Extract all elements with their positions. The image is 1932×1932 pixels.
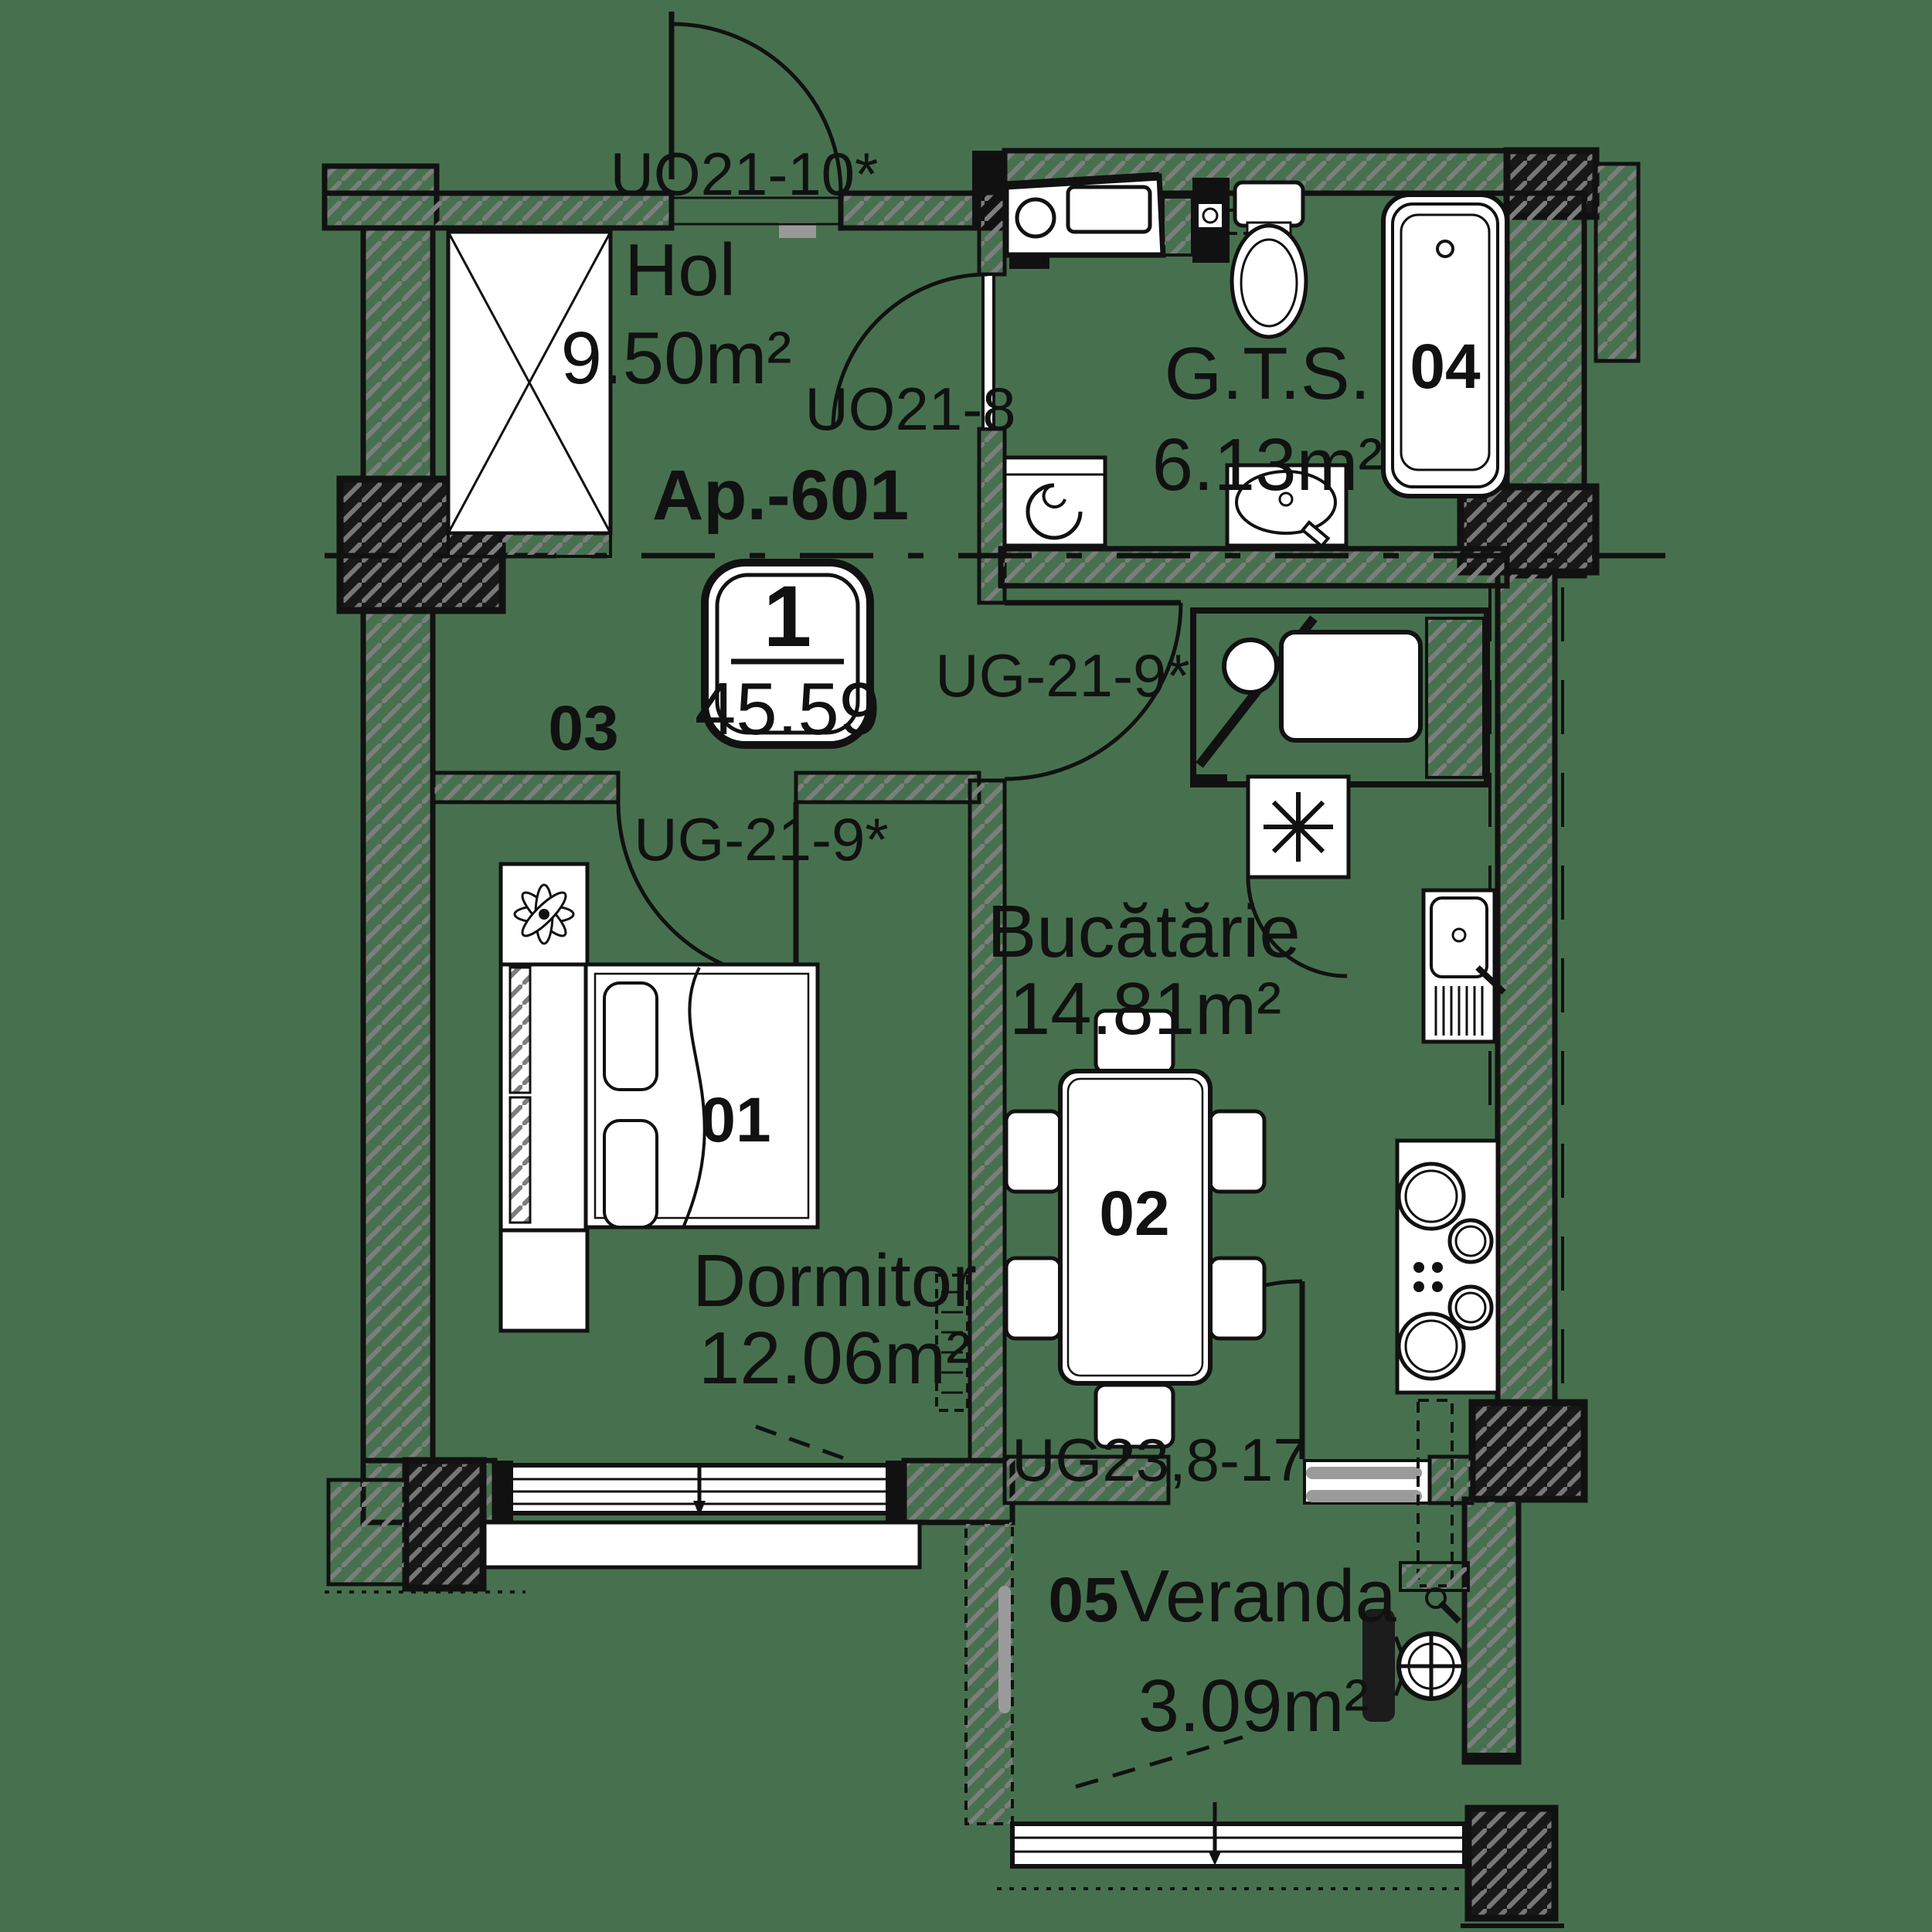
floorplan-svg: 1 45.59 UO21-10* Hol 9.50m² UO21-8 Ap.-6… xyxy=(0,0,1932,1932)
threshold-bar-2 xyxy=(1306,1490,1422,1502)
chair xyxy=(1006,1111,1060,1192)
nightstand xyxy=(501,1230,587,1331)
veranda-step xyxy=(1400,1563,1468,1590)
headboard-cushion xyxy=(510,968,530,1093)
label-veranda-name: Veranda xyxy=(1120,1555,1396,1638)
wall-veranda-east-cap xyxy=(1464,1753,1519,1764)
pillow xyxy=(604,1121,657,1227)
label-bathroom-door: UO21-8 xyxy=(804,375,1015,443)
wall-west xyxy=(363,228,433,1461)
wall-hol-dormitor-right xyxy=(796,773,979,802)
wall-hol-dormitor-left xyxy=(433,773,618,802)
pillow xyxy=(604,983,657,1090)
label-hol-name: Hol xyxy=(624,229,736,311)
label-hol-number: 03 xyxy=(548,693,618,764)
wall-bottomleft-block xyxy=(328,1480,406,1584)
chair xyxy=(1210,1111,1264,1192)
label-gts-number: 04 xyxy=(1410,332,1481,402)
washing-machine xyxy=(1005,457,1105,546)
label-kitchen-name: Bucătărie xyxy=(987,890,1301,973)
label-dormitor-number: 01 xyxy=(700,1085,770,1155)
plant xyxy=(501,864,587,964)
kitchen-sink xyxy=(1423,890,1504,1042)
label-veranda-number: 05 xyxy=(1048,1565,1118,1635)
label-dormitor-name: Dormitor xyxy=(692,1240,977,1322)
badge-total-area: 45.59 xyxy=(695,668,880,750)
chair xyxy=(1210,1258,1264,1338)
wall-kitchen-east xyxy=(1498,572,1555,1468)
label-bedroom-door: UG-21-9* xyxy=(634,805,888,873)
apartment-badge: 1 45.59 xyxy=(695,563,880,750)
label-kitchen-door: UG-21-9* xyxy=(935,641,1189,709)
column-kitchen-se xyxy=(1472,1403,1584,1499)
label-entry-door: UO21-10* xyxy=(611,140,879,208)
exhaust-fan xyxy=(1396,1634,1464,1699)
column-bottomright xyxy=(1468,1808,1555,1918)
label-hol-area: 9.50m² xyxy=(561,317,792,400)
toilet xyxy=(1232,182,1306,337)
label-kitchen-number: 02 xyxy=(1099,1179,1169,1249)
wall-east-strip xyxy=(1596,164,1638,361)
label-gts-area: 6.13m² xyxy=(1152,423,1383,506)
headboard-cushion xyxy=(510,1097,530,1223)
label-veranda-door: UG23,8-17 xyxy=(1012,1426,1307,1494)
washing-machine-top xyxy=(1006,176,1163,269)
column-bottomleft xyxy=(406,1461,483,1588)
wall-veranda-east xyxy=(1464,1499,1519,1762)
chair xyxy=(1006,1258,1060,1338)
wall-dormitor-south-right xyxy=(904,1461,1012,1522)
label-gts-name: G.T.S. xyxy=(1165,332,1371,415)
label-apartment: Ap.-601 xyxy=(652,456,909,535)
badge-room-count: 1 xyxy=(764,568,811,665)
wall-hol-gts-upper xyxy=(979,193,1005,274)
wall-dormitor-east xyxy=(970,781,1005,1461)
label-dormitor-area: 12.06m² xyxy=(699,1317,971,1400)
cooktop xyxy=(1397,1141,1498,1393)
threshold-bar-1 xyxy=(1306,1467,1422,1479)
threshold-bar-veranda xyxy=(998,1586,1011,1713)
label-veranda-area: 3.09m² xyxy=(1138,1665,1369,1747)
floorplan-canvas: 1 45.59 UO21-10* Hol 9.50m² UO21-8 Ap.-6… xyxy=(0,0,1932,1932)
label-kitchen-area: 14.81m² xyxy=(1009,968,1281,1050)
